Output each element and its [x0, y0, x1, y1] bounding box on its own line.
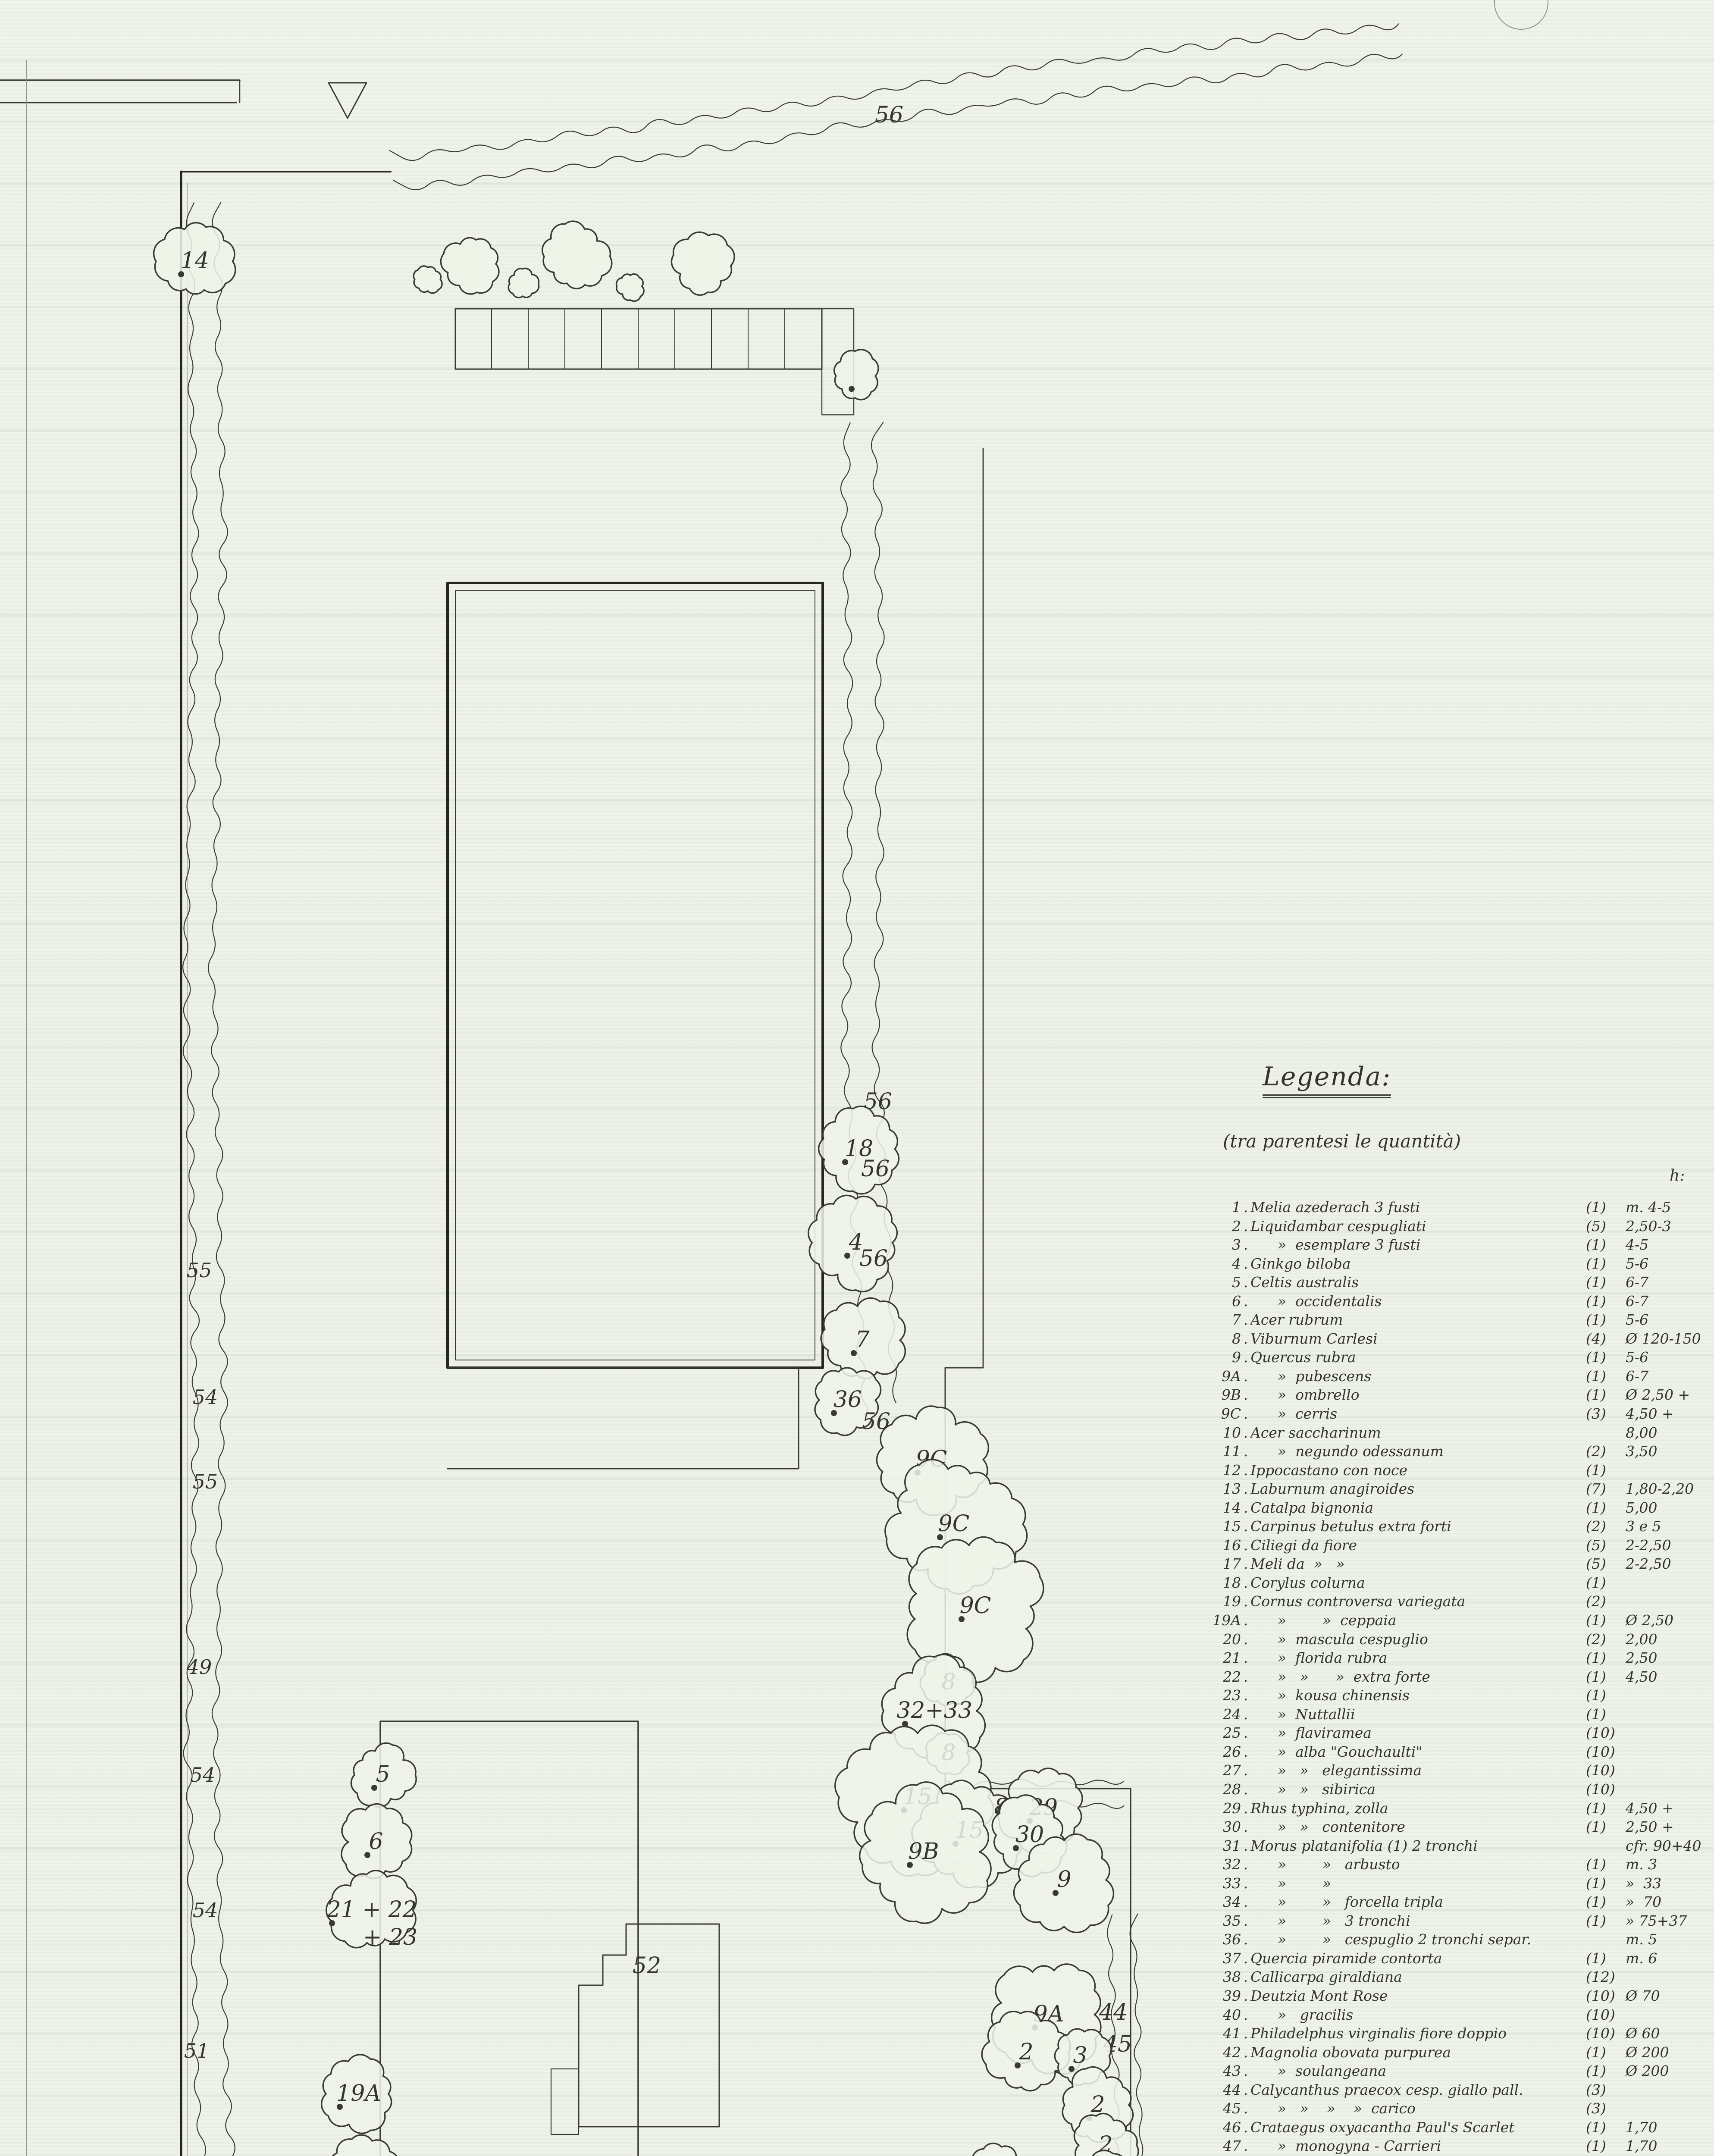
plan-label: 9C	[938, 1511, 970, 1537]
legend-cell-n: 7	[1204, 1311, 1241, 1328]
legend-cell-q: (10)	[1586, 1724, 1626, 1741]
legend-cell-dt: .	[1241, 1875, 1250, 1892]
legend-row: 44.Calycanthus praecox cesp. giallo pall…	[1204, 2081, 1711, 2100]
punch-hole-mark	[1495, 0, 1548, 29]
legend-row: 33. » »(1)» 33	[1204, 1875, 1711, 1894]
legend-cell-dt: .	[1241, 1274, 1250, 1291]
legend-cell-n: 30	[1204, 1818, 1241, 1835]
legend-cell-q: (1)	[1586, 2044, 1626, 2061]
legend-cell-n: 46	[1204, 2119, 1241, 2136]
legend-cell-q: (7)	[1586, 1480, 1626, 1497]
legend-cell-q: (1)	[1586, 1236, 1626, 1253]
legend-row: 23. » kousa chinensis(1)	[1204, 1687, 1711, 1706]
legend-cell-q: (4)	[1586, 1330, 1626, 1347]
legend-row: 32. » » arbusto(1)m. 3	[1204, 1856, 1711, 1875]
legend-cell-dt: .	[1241, 1818, 1250, 1835]
legend-row: 4.Ginkgo biloba(1)5-6	[1204, 1255, 1711, 1274]
legend-cell-q: (1)	[1586, 1349, 1626, 1366]
legend-cell-n: 25	[1204, 1724, 1241, 1741]
legend-cell-n: 6	[1204, 1293, 1241, 1310]
legend-row: 7.Acer rubrum(1)5-6	[1204, 1311, 1711, 1330]
legend-cell-n: 34	[1204, 1893, 1241, 1910]
legend-cell-dt: .	[1241, 1255, 1250, 1272]
legend-cell-v: 4-5	[1626, 1236, 1711, 1253]
legend-cell-n: 29	[1204, 1800, 1241, 1817]
legend-cell-dt: .	[1241, 1424, 1250, 1441]
legend-cell-dt: .	[1241, 1574, 1250, 1591]
legend-row: 31.Morus platanifolia (1) 2 tronchicfr. …	[1204, 1837, 1711, 1856]
legend-cell-nm: » gracilis	[1250, 2006, 1586, 2023]
legend-cell-q: (3)	[1586, 2100, 1626, 2117]
legend-cell-q: (1)	[1586, 1255, 1626, 1272]
legend-row: 8.Viburnum Carlesi(4)Ø 120-150	[1204, 1330, 1711, 1349]
legend-cell-q: (10)	[1586, 2006, 1626, 2023]
legend-row: 34. » » forcella tripla(1)» 70	[1204, 1893, 1711, 1912]
legend-cell-n: 35	[1204, 1912, 1241, 1929]
legend-row: 5.Celtis australis(1)6-7	[1204, 1274, 1711, 1293]
legend-cell-q: (5)	[1586, 1218, 1626, 1235]
legend-cell-n: 9	[1204, 1349, 1241, 1366]
legend-cell-nm: Melia azederach 3 fusti	[1250, 1199, 1586, 1216]
legend-cell-nm: Carpinus betulus extra forti	[1250, 1518, 1586, 1535]
legend-cell-n: 5	[1204, 1274, 1241, 1291]
legend-cell-n: 3	[1204, 1236, 1241, 1253]
legend-cell-nm: Crataegus oxyacantha Paul's Scarlet	[1250, 2119, 1586, 2136]
tree-symbol	[617, 274, 644, 301]
legend-cell-v: 5-6	[1626, 1255, 1711, 1272]
legend-row: 24. » Nuttallii(1)	[1204, 1706, 1711, 1725]
legend-cell-v: 4,50	[1626, 1668, 1711, 1685]
legend-cell-n: 13	[1204, 1480, 1241, 1497]
legend-row: 42.Magnolia obovata purpurea(1)Ø 200	[1204, 2044, 1711, 2063]
legend-cell-n: 11	[1204, 1443, 1241, 1460]
legend-row: 41.Philadelphus virginalis fiore doppio(…	[1204, 2025, 1711, 2044]
legend-cell-n: 43	[1204, 2062, 1241, 2079]
legend-cell-dt: .	[1241, 1968, 1250, 1985]
tree-trunk-dot	[849, 386, 855, 392]
legend-heading: Legenda:	[1263, 1062, 1391, 1098]
legend-cell-v: 6-7	[1626, 1293, 1711, 1310]
legend-row: 17.Meli da » »(5)2-2,50	[1204, 1555, 1711, 1574]
legend-cell-q: (2)	[1586, 1443, 1626, 1460]
legend-row: 9C. » cerris(3)4,50 +	[1204, 1405, 1711, 1424]
legend-cell-n: 36	[1204, 1931, 1241, 1948]
legend-cell-v: 2-2,50	[1626, 1555, 1711, 1572]
legend-cell-nm: Meli da » »	[1250, 1555, 1586, 1572]
legend-cell-nm: » » contenitore	[1250, 1818, 1586, 1835]
legend-cell-v: 3 e 5	[1626, 1518, 1711, 1535]
legend-row: 21. » florida rubra(1)2,50	[1204, 1649, 1711, 1668]
legend-cell-q: (1)	[1586, 1386, 1626, 1403]
legend-cell-q: (1)	[1586, 1706, 1626, 1723]
legend-cell-dt: .	[1241, 2006, 1250, 2023]
legend-cell-nm: » » 3 tronchi	[1250, 1912, 1586, 1929]
legend-cell-dt: .	[1241, 1330, 1250, 1347]
plan-label: 3	[1073, 2043, 1087, 2068]
plan-label: 55	[187, 1259, 212, 1282]
legend-cell-n: 9B	[1204, 1386, 1241, 1403]
plan-label: 7	[855, 1327, 870, 1353]
plan-label: 32+33	[896, 1698, 972, 1724]
legend-row: 12.Ippocastano con noce(1)	[1204, 1462, 1711, 1481]
legend-cell-nm: » soulangeana	[1250, 2062, 1586, 2079]
legend-cell-dt: .	[1241, 1593, 1250, 1610]
legend-cell-q: (5)	[1586, 1555, 1626, 1572]
legend-cell-dt: .	[1241, 1518, 1250, 1535]
legend-cell-nm: Ginkgo biloba	[1250, 1255, 1586, 1272]
tree-symbol	[326, 2135, 399, 2156]
plan-label: 19A	[336, 2081, 381, 2106]
legend-cell-q: (1)	[1586, 1311, 1626, 1328]
legend-cell-n: 8	[1204, 1330, 1241, 1347]
legend-cell-nm: » Nuttallii	[1250, 1706, 1586, 1723]
legend-cell-v: Ø 70	[1626, 1987, 1711, 2004]
plan-label: 54	[190, 1763, 216, 1786]
plan-label: 49	[186, 1655, 212, 1679]
legend-cell-dt: .	[1241, 1293, 1250, 1310]
legend-cell-v: 8,00	[1626, 1424, 1711, 1441]
plan-label: 56	[875, 102, 903, 128]
legend-cell-nm: » cerris	[1250, 1405, 1586, 1422]
legend-cell-nm: Quercus rubra	[1250, 1349, 1586, 1366]
legend-cell-q: (5)	[1586, 1537, 1626, 1554]
legend-cell-nm: Acer rubrum	[1250, 1311, 1586, 1328]
legend-cell-n: 45	[1204, 2100, 1241, 2117]
plan-label: 2	[1018, 2039, 1033, 2065]
legend-row: 28. » » sibirica(10)	[1204, 1781, 1711, 1800]
plan-label: 44	[1099, 1999, 1128, 2025]
legend-row: 30. » » contenitore(1)2,50 +	[1204, 1818, 1711, 1837]
legend-cell-nm: Rhus typhina, zolla	[1250, 1800, 1586, 1817]
legend-cell-q: (1)	[1586, 1912, 1626, 1929]
legend-cell-nm: » flaviramea	[1250, 1724, 1586, 1741]
legend-cell-dt: .	[1241, 1537, 1250, 1554]
legend-cell-v: 5,00	[1626, 1499, 1711, 1516]
legend-cell-nm: » »	[1250, 1875, 1586, 1892]
plan-label: 51	[184, 2039, 210, 2062]
legend-cell-q: (1)	[1586, 1818, 1626, 1835]
legend-cell-q: (1)	[1586, 1950, 1626, 1967]
legend-cell-n: 33	[1204, 1875, 1241, 1892]
legend-cell-v: 2,50-3	[1626, 1218, 1711, 1235]
legend-cell-n: 20	[1204, 1631, 1241, 1648]
legend-cell-v: 5-6	[1626, 1311, 1711, 1328]
legend-cell-n: 17	[1204, 1555, 1241, 1572]
legend-cell-dt: .	[1241, 1612, 1250, 1629]
legend-cell-n: 23	[1204, 1687, 1241, 1704]
legend-cell-q: (1)	[1586, 1687, 1626, 1704]
legend-row: 11. » negundo odessanum(2)3,50	[1204, 1443, 1711, 1462]
legend-cell-q: (3)	[1586, 2081, 1626, 2098]
legend-cell-v: 2,00	[1626, 1631, 1711, 1648]
legend-cell-dt: .	[1241, 1218, 1250, 1235]
legend-cell-v: 2,50	[1626, 1649, 1711, 1666]
legend-row: 19.Cornus controversa variegata(2)	[1204, 1593, 1711, 1612]
legend-row: 37.Quercia piramide contorta(1)m. 6	[1204, 1950, 1711, 1969]
plan-label: 36	[833, 1387, 862, 1413]
legend-cell-q: (1)	[1586, 2119, 1626, 2136]
legend-cell-q: (1)	[1586, 1368, 1626, 1385]
tree-symbol	[508, 268, 539, 298]
legend-cell-q: (1)	[1586, 1856, 1626, 1873]
legend-cell-n: 4	[1204, 1255, 1241, 1272]
legend-cell-dt: .	[1241, 1668, 1250, 1685]
legend-cell-nm: Celtis australis	[1250, 1274, 1586, 1291]
legend-row: 43. » soulangeana(1)Ø 200	[1204, 2062, 1711, 2081]
legend-cell-q: (10)	[1586, 1743, 1626, 1760]
legend-cell-dt: .	[1241, 2119, 1250, 2136]
legend-row: 46.Crataegus oxyacantha Paul's Scarlet(1…	[1204, 2119, 1711, 2138]
legend-cell-nm: » pubescens	[1250, 1368, 1586, 1385]
legend-cell-v: m. 4-5	[1626, 1199, 1711, 1216]
legend-cell-dt: .	[1241, 1349, 1250, 1366]
legend-cell-v: 4,50 +	[1626, 1800, 1711, 1817]
legend-cell-q: (10)	[1586, 1987, 1626, 2004]
legend-cell-q: (1)	[1586, 1293, 1626, 1310]
villa-outline	[448, 583, 823, 1368]
legend-cell-nm: Morus platanifolia (1) 2 tronchi	[1250, 1837, 1586, 1854]
legend-cell-n: 10	[1204, 1424, 1241, 1441]
legend-cell-v: 2,50 +	[1626, 1818, 1711, 1835]
legend-cell-v: 1,70	[1626, 2119, 1711, 2136]
tree-symbol	[441, 238, 499, 294]
legend-cell-nm: » occidentalis	[1250, 1293, 1586, 1310]
legend-row: 9.Quercus rubra(1)5-6	[1204, 1349, 1711, 1368]
legend-cell-dt: .	[1241, 1856, 1250, 1873]
legend-cell-dt: .	[1241, 1743, 1250, 1760]
legend-cell-n: 12	[1204, 1462, 1241, 1479]
legend-cell-nm: Corylus colurna	[1250, 1574, 1586, 1591]
plan-label: 21 + 22	[326, 1897, 417, 1923]
legend-cell-v: 2-2,50	[1626, 1537, 1711, 1554]
legend-cell-q: (1)	[1586, 1893, 1626, 1910]
plan-label: 54	[193, 1899, 218, 1922]
legend-cell-n: 39	[1204, 1987, 1241, 2004]
legend-cell-dt: .	[1241, 2100, 1250, 2117]
courtyard-outline	[380, 1721, 638, 2156]
legend-cell-nm: » esemplare 3 fusti	[1250, 1236, 1586, 1253]
legend-row: 40. » gracilis(10)	[1204, 2006, 1711, 2025]
legend-cell-dt: .	[1241, 1987, 1250, 2004]
legend-cell-dt: .	[1241, 1649, 1250, 1666]
legend-cell-dt: .	[1241, 1837, 1250, 1854]
legend-row: 26. » alba "Gouchaulti"(10)	[1204, 1743, 1711, 1762]
hedge-band	[183, 203, 248, 2156]
legend-row: 2.Liquidambar cespugliati(5)2,50-3	[1204, 1218, 1711, 1237]
legend-cell-n: 22	[1204, 1668, 1241, 1685]
legend-cell-n: 32	[1204, 1856, 1241, 1873]
legend-cell-n: 2	[1204, 1218, 1241, 1235]
legend-cell-n: 19A	[1204, 1612, 1241, 1629]
legend-cell-q: (1)	[1586, 1668, 1626, 1685]
legend-cell-nm: Deutzia Mont Rose	[1250, 1987, 1586, 2004]
plan-label: 56	[861, 1156, 890, 1182]
legend-cell-n: 40	[1204, 2006, 1241, 2023]
legend-cell-n: 21	[1204, 1649, 1241, 1666]
legend-cell-nm: » » elegantissima	[1250, 1762, 1586, 1779]
legend-cell-q: (1)	[1586, 1649, 1626, 1666]
legend-cell-q: (1)	[1586, 1462, 1626, 1479]
legend-cell-dt: .	[1241, 2081, 1250, 2098]
legend-cell-nm: » alba "Gouchaulti"	[1250, 1743, 1586, 1760]
legend-cell-dt: .	[1241, 2025, 1250, 2042]
plan-label: 54	[193, 1385, 218, 1409]
legend-cell-v: 6-7	[1626, 1274, 1711, 1291]
plan-label: 6	[369, 1829, 383, 1855]
plan-label: 52	[633, 1953, 661, 1979]
legend-cell-dt: .	[1241, 1443, 1250, 1460]
legend-cell-v: » 33	[1626, 1875, 1711, 1892]
legend-cell-nm: » » forcella tripla	[1250, 1893, 1586, 1910]
legend-cell-n: 15	[1204, 1518, 1241, 1535]
legend-row: 38.Callicarpa giraldiana(12)	[1204, 1968, 1711, 1987]
legend-subheading: (tra parentesi le quantità)	[1223, 1131, 1461, 1152]
legend-cell-n: 47	[1204, 2137, 1241, 2154]
legend-row: 45. » » » » carico(3)	[1204, 2100, 1711, 2119]
legend-cell-q: (1)	[1586, 2137, 1626, 2154]
legend-cell-dt: .	[1241, 1368, 1250, 1385]
legend-row: 22. » » » extra forte(1)4,50	[1204, 1668, 1711, 1687]
legend-cell-v: Ø 2,50	[1626, 1612, 1711, 1629]
legend-row: 9A. » pubescens(1)6-7	[1204, 1368, 1711, 1387]
legend-cell-q: (1)	[1586, 1800, 1626, 1817]
legend-row: 13.Laburnum anagiroides(7)1,80-2,20	[1204, 1480, 1711, 1499]
legend-cell-n: 27	[1204, 1762, 1241, 1779]
legend-row: 27. » » elegantissima(10)	[1204, 1762, 1711, 1781]
legend-row: 10.Acer saccharinum8,00	[1204, 1424, 1711, 1443]
legend-cell-dt: .	[1241, 1499, 1250, 1516]
legend-cell-dt: .	[1241, 1762, 1250, 1779]
legend-cell-dt: .	[1241, 1631, 1250, 1648]
plan-label: 56	[859, 1246, 888, 1272]
legend-cell-q: (10)	[1586, 2025, 1626, 2042]
tree-symbol	[542, 221, 612, 288]
legend-cell-nm: » ombrello	[1250, 1386, 1586, 1403]
legend-cell-dt: .	[1241, 1386, 1250, 1403]
legend-cell-v: m. 6	[1626, 1950, 1711, 1967]
legend-row: 9B. » ombrello(1)Ø 2,50 +	[1204, 1386, 1711, 1405]
legend-cell-v: 4,50 +	[1626, 1405, 1711, 1422]
legend-row: 19A. » » ceppaia(1)Ø 2,50	[1204, 1612, 1711, 1631]
legend-cell-v: Ø 120-150	[1626, 1330, 1711, 1347]
drawing-sheet: 5614561856456736569C9C9C832+33815159B829…	[0, 0, 1714, 2156]
legend-cell-v: cfr. 90+40	[1626, 1837, 1711, 1854]
legend-cell-n: 1	[1204, 1199, 1241, 1216]
legend-cell-nm: Viburnum Carlesi	[1250, 1330, 1586, 1347]
plan-label: 55	[193, 1470, 218, 1493]
tree-symbol	[671, 232, 734, 295]
legend-row: 39.Deutzia Mont Rose(10)Ø 70	[1204, 1987, 1711, 2006]
legend-cell-n: 26	[1204, 1743, 1241, 1760]
legend-cell-nm: » monogyna - Carrieri	[1250, 2137, 1586, 2154]
plan-label: 14	[181, 248, 209, 274]
legend-cell-dt: .	[1241, 1950, 1250, 1967]
legend-cell-n: 9A	[1204, 1368, 1241, 1385]
legend-cell-nm: » florida rubra	[1250, 1649, 1586, 1666]
legend-cell-n: 41	[1204, 2025, 1241, 2042]
legend-cell-nm: Philadelphus virginalis fiore doppio	[1250, 2025, 1586, 2042]
legend-cell-n: 37	[1204, 1950, 1241, 1967]
legend-cell-n: 24	[1204, 1706, 1241, 1723]
legend-cell-nm: » » sibirica	[1250, 1781, 1586, 1798]
legend-cell-dt: .	[1241, 1706, 1250, 1723]
legend-row: 36. » » cespuglio 2 tronchi separ.m. 5	[1204, 1931, 1711, 1950]
legend-cell-n: 44	[1204, 2081, 1241, 2098]
legend-cell-v: 5-6	[1626, 1349, 1711, 1366]
legend-row: 15.Carpinus betulus extra forti(2)3 e 5	[1204, 1518, 1711, 1537]
legend-height-header: h:	[1670, 1167, 1685, 1185]
hedge-band	[208, 202, 274, 2156]
legend-cell-v: Ø 60	[1626, 2025, 1711, 2042]
legend-cell-v: 1,80-2,20	[1626, 1480, 1711, 1497]
legend-cell-n: 42	[1204, 2044, 1241, 2061]
legend-row: 1.Melia azederach 3 fusti(1)m. 4-5	[1204, 1199, 1711, 1218]
tree-symbol	[968, 2143, 1024, 2156]
legend-cell-nm: Magnolia obovata purpurea	[1250, 2044, 1586, 2061]
legend-row: 6. » occidentalis(1)6-7	[1204, 1293, 1711, 1312]
legend-cell-q: (1)	[1586, 1574, 1626, 1591]
legend-cell-dt: .	[1241, 1781, 1250, 1798]
tree-symbol	[834, 350, 878, 400]
legend-row: 25. » flaviramea(10)	[1204, 1724, 1711, 1743]
legend-cell-nm: » » » extra forte	[1250, 1668, 1586, 1685]
legend-cell-nm: Acer saccharinum	[1250, 1424, 1586, 1441]
legend-cell-dt: .	[1241, 1199, 1250, 1216]
legend-cell-nm: » » ceppaia	[1250, 1612, 1586, 1629]
legend-cell-v: 1,70	[1626, 2137, 1711, 2154]
legend-cell-dt: .	[1241, 1311, 1250, 1328]
legend-cell-v: Ø 200	[1626, 2062, 1711, 2079]
legend-cell-q: (1)	[1586, 2062, 1626, 2079]
terrace-outline	[448, 1368, 799, 1469]
legend-cell-nm: » negundo odessanum	[1250, 1443, 1586, 1460]
legend-cell-v: m. 5	[1626, 1931, 1711, 1948]
legend-cell-dt: .	[1241, 1405, 1250, 1422]
legend-cell-q: (10)	[1586, 1762, 1626, 1779]
legend-cell-v: » 75+37	[1626, 1912, 1711, 1929]
legend-cell-dt: .	[1241, 1724, 1250, 1741]
legend-cell-dt: .	[1241, 1931, 1250, 1948]
legend-cell-n: 16	[1204, 1537, 1241, 1554]
legend-cell-nm: » » » » carico	[1250, 2100, 1586, 2117]
legend-row: 18.Corylus colurna(1)	[1204, 1574, 1711, 1593]
tree-symbol	[414, 266, 442, 293]
legend-cell-n: 19	[1204, 1593, 1241, 1610]
legend-row: 29.Rhus typhina, zolla(1)4,50 +	[1204, 1800, 1711, 1819]
legend-cell-nm: » kousa chinensis	[1250, 1687, 1586, 1704]
legend-cell-q: (1)	[1586, 1612, 1626, 1629]
legend-cell-dt: .	[1241, 1236, 1250, 1253]
entrance-marker-top	[329, 83, 367, 118]
legend-cell-q: (10)	[1586, 1781, 1626, 1798]
plan-label: + 23	[363, 1924, 417, 1950]
plan-label: 9C	[960, 1593, 991, 1619]
legend-cell-n: 14	[1204, 1499, 1241, 1516]
legend-cell-n: 38	[1204, 1968, 1241, 1985]
legend-cell-q: (1)	[1586, 1875, 1626, 1892]
legend-row: 20. » mascula cespuglio(2)2,00	[1204, 1631, 1711, 1650]
legend-cell-q: (1)	[1586, 1274, 1626, 1291]
legend-cell-v: Ø 200	[1626, 2044, 1711, 2061]
legend-cell-nm: Callicarpa giraldiana	[1250, 1968, 1586, 1985]
legend-cell-n: 28	[1204, 1781, 1241, 1798]
legend-cell-dt: .	[1241, 2137, 1250, 2154]
legend-row: 3. » esemplare 3 fusti(1)4-5	[1204, 1236, 1711, 1255]
legend-cell-v: 6-7	[1626, 1368, 1711, 1385]
legend-row: 35. » » 3 tronchi(1)» 75+37	[1204, 1912, 1711, 1931]
legend-rows: 1.Melia azederach 3 fusti(1)m. 4-52.Liqu…	[1204, 1199, 1711, 2156]
legend-cell-dt: .	[1241, 1687, 1250, 1704]
